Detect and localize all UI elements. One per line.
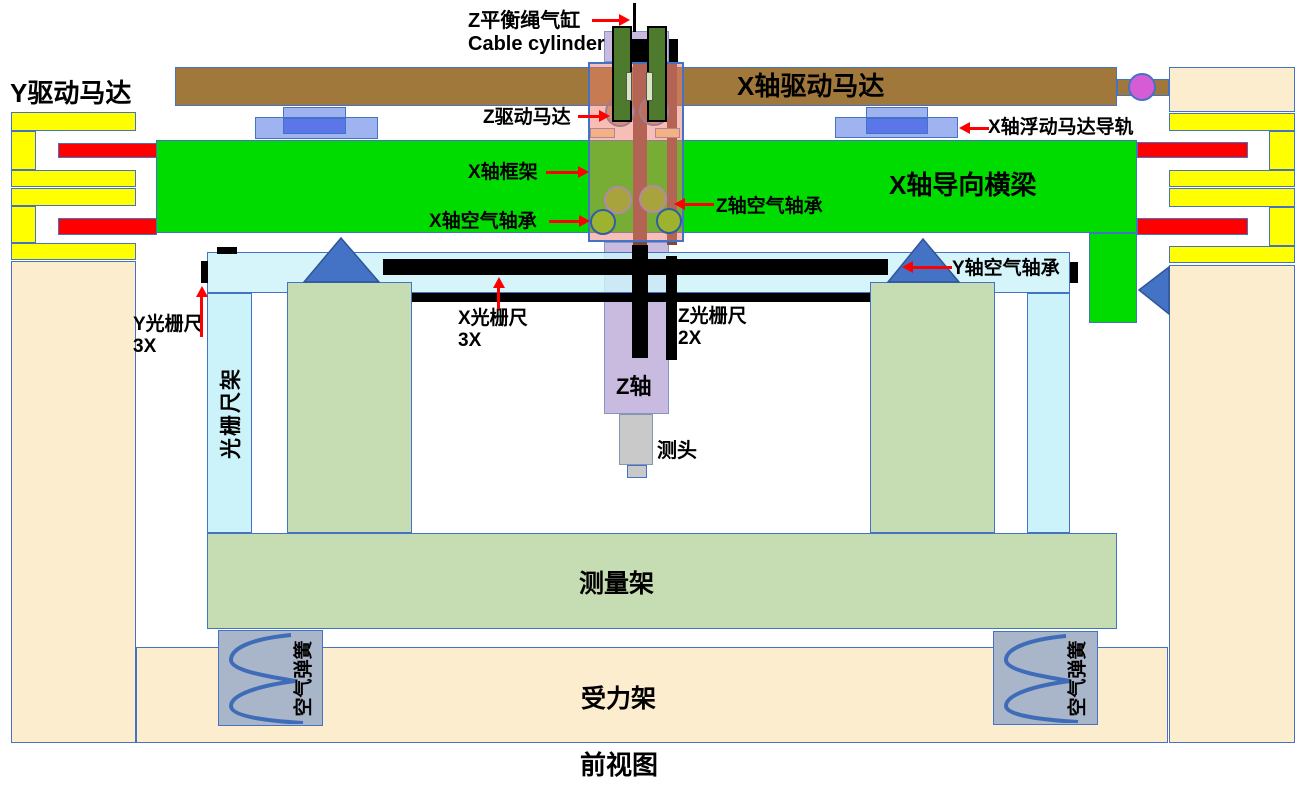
air-spring-left-label-wrap: 空气弹簧: [282, 630, 322, 726]
probe-body: [619, 414, 653, 465]
scale-frame-title-wrap: 光栅尺架: [207, 293, 252, 533]
measuring-frame-title: 测量架: [579, 570, 654, 599]
y-scale-label: Y光栅尺 3X: [133, 314, 203, 358]
arrow-line: [912, 266, 952, 269]
y-motor-mover-bar: [58, 143, 157, 158]
y-motor-stator-bar: [11, 243, 136, 260]
y-motor-stator-bar: [1169, 246, 1295, 263]
y-drive-motor-title: Y驱动马达: [10, 79, 131, 109]
y-air-bearing-triangle-edge: [1138, 266, 1170, 315]
measuring-frame-right-leg: [870, 282, 995, 533]
y-air-bearing-triangle-left: [303, 237, 380, 283]
probe-tip: [627, 465, 647, 478]
front-view-diagram: 空气弹簧 空气弹簧 X轴驱动马达 X轴导向横梁 Y驱动马达: [0, 0, 1310, 789]
y-scale-strip-right: [1070, 262, 1078, 283]
y-motor-stator-spine: [1269, 131, 1295, 170]
z-rail-lower: [632, 245, 648, 358]
arrow-line: [549, 220, 581, 223]
y-scale-label-qty: 3X: [133, 336, 203, 358]
y-scale-strip-top: [217, 247, 237, 254]
cable-cylinder-label-en: Cable cylinder: [468, 33, 605, 56]
arrow-right-icon: [578, 166, 589, 178]
arrow-left-icon: [902, 261, 913, 273]
force-frame-title: 受力架: [581, 685, 656, 714]
y-motor-stator-bar: [11, 112, 136, 131]
x-floating-rail-slider: [283, 118, 346, 134]
measuring-frame-base: [207, 533, 1117, 629]
air-spring-right-label-wrap: 空气弹簧: [1056, 631, 1096, 725]
arrow-line: [969, 127, 989, 130]
x-scale-label-name: X光栅尺: [458, 308, 528, 330]
cable-cylinder-label-zh: Z平衡绳气缸: [468, 10, 605, 33]
y-motor-stator-bar: [11, 188, 136, 206]
x-floating-rail-label: X轴浮动马达导轨: [988, 117, 1134, 139]
z-air-bearing-label: Z轴空气轴承: [716, 196, 823, 218]
z-motor-slot-right: [646, 72, 653, 101]
x-scale-label-qty: 3X: [458, 330, 528, 352]
z-scale-strip: [666, 256, 677, 360]
measuring-frame-left-leg: [287, 282, 412, 533]
x-air-bearing-label: X轴空气轴承: [429, 211, 537, 233]
view-title: 前视图: [580, 751, 658, 781]
y-motor-stator-spine: [11, 131, 36, 170]
right-top-block: [1169, 67, 1295, 112]
cable-cylinder-label: Z平衡绳气缸 Cable cylinder: [468, 10, 605, 56]
force-frame-left-column: [11, 261, 136, 743]
y-air-bearing-label: Y轴空气轴承: [952, 258, 1060, 280]
y-air-bearing-triangle-right: [887, 238, 960, 283]
arrow-line: [200, 295, 203, 337]
z-axis-title: Z轴: [616, 374, 651, 399]
z-scale-label: Z光栅尺 2X: [678, 306, 747, 350]
y-scale-label-name: Y光栅尺: [133, 314, 203, 336]
air-spring-label: 空气弹簧: [1063, 640, 1090, 716]
arrow-line: [497, 286, 500, 309]
y-motor-stator-bar: [11, 170, 136, 187]
arrow-line: [684, 203, 714, 206]
arrow-up-icon: [196, 286, 208, 297]
y-motor-mover-bar: [1137, 218, 1248, 235]
z-motor-slot-left: [626, 72, 632, 101]
probe-label: 测头: [657, 440, 697, 463]
arrow-right-icon: [579, 215, 590, 227]
x-guide-beam-title: X轴导向横梁: [889, 171, 1036, 201]
y-motor-mover-bar: [1137, 142, 1248, 158]
arrow-up-icon: [493, 277, 505, 288]
y-motor-mover-bar: [58, 218, 157, 235]
x-air-bearing-left: [590, 209, 616, 235]
x-carriage-foot-left: [590, 128, 615, 138]
arrow-right-icon: [619, 14, 630, 26]
z-scale-label-qty: 2X: [678, 328, 747, 350]
arrow-right-icon: [599, 110, 610, 122]
x-floating-rail-slider: [866, 118, 928, 134]
x-drive-motor-title: X轴驱动马达: [737, 72, 884, 102]
cable-cylinder-rod: [633, 3, 636, 32]
y-motor-stator-spine: [1269, 207, 1295, 246]
z-scale-label-name: Z光栅尺: [678, 306, 747, 328]
y-motor-stator-bar: [1169, 188, 1295, 207]
z-rail-top-cap: [632, 39, 648, 62]
arrow-line: [578, 115, 600, 118]
x-drive-coupler: [1128, 73, 1156, 101]
scale-frame-title: 光栅尺架: [215, 367, 245, 459]
x-guide-beam-right-leg: [1089, 233, 1137, 323]
x-carriage-foot-right: [655, 128, 680, 138]
arrow-line: [546, 171, 580, 174]
y-motor-stator-bar: [1169, 170, 1295, 187]
arrow-line: [592, 19, 620, 22]
z-scale-top-cap: [669, 39, 678, 62]
force-frame-right-column: [1169, 265, 1295, 743]
z-drive-motor-label: Z驱动马达: [483, 107, 571, 129]
y-motor-stator-bar: [1169, 113, 1295, 131]
air-spring-label: 空气弹簧: [289, 640, 316, 716]
x-scale-label: X光栅尺 3X: [458, 308, 528, 352]
arrow-left-icon: [674, 198, 685, 210]
arrow-left-icon: [959, 122, 970, 134]
x-air-bearing-right: [656, 208, 682, 234]
y-motor-stator-spine: [11, 206, 36, 243]
scale-frame-right-column: [1027, 293, 1070, 533]
x-frame-label: X轴框架: [468, 162, 538, 184]
y-scale-strip-left: [201, 261, 208, 283]
